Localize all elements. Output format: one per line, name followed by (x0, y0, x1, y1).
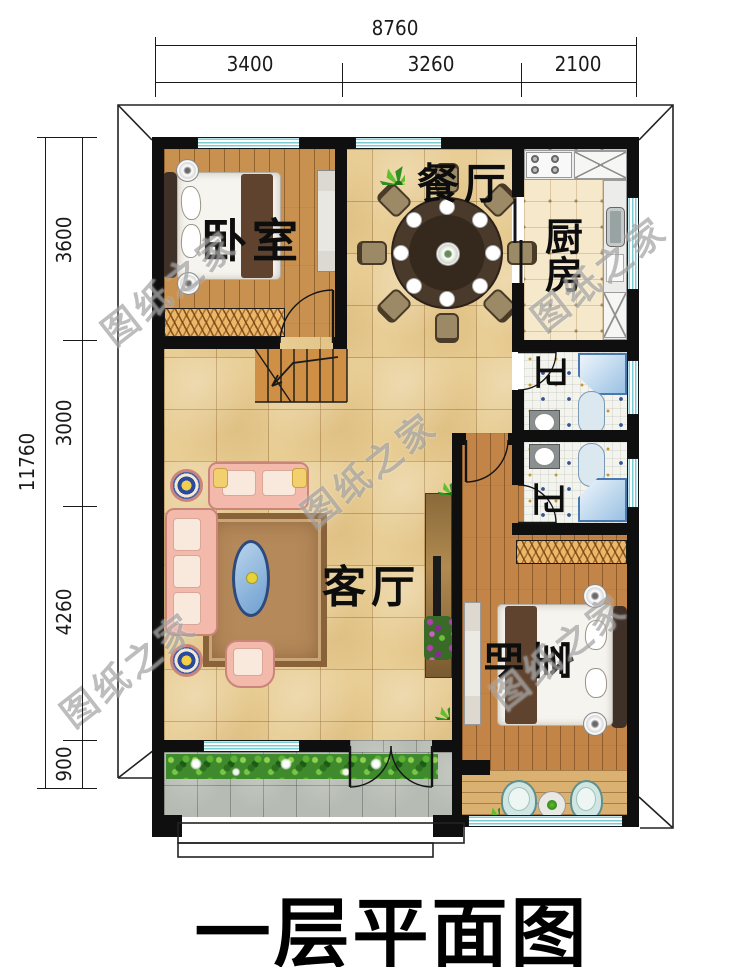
dim-tick (342, 63, 343, 97)
dim-left-seg0: 3600 (52, 217, 76, 264)
window (355, 137, 442, 149)
dim-top-seg-line (155, 82, 636, 83)
dim-tick (63, 740, 97, 741)
balcony-chair-cushion (576, 787, 596, 811)
dining-chair (507, 241, 537, 265)
stove-burner (551, 166, 559, 174)
sink-upper (578, 391, 605, 435)
plan-title: 一层平面图 (195, 872, 590, 967)
room-label-dining: 餐厅 (417, 151, 511, 212)
porch-hedge (166, 754, 438, 779)
window (203, 740, 300, 752)
balcony-chair-cushion (508, 787, 530, 811)
plate (393, 245, 409, 261)
dim-tick (155, 37, 156, 97)
plant-icon (416, 686, 450, 720)
dim-top-seg0: 3400 (227, 52, 274, 76)
toilet-upper-bowl (534, 413, 555, 432)
kitchen-cabinet-x (603, 292, 627, 338)
nightstand-lamp (176, 159, 199, 182)
dim-left-seg-line (82, 137, 83, 788)
dim-tick (63, 506, 97, 507)
sofa-cushion (262, 470, 296, 496)
stove-burner (551, 155, 559, 163)
dresser (317, 170, 338, 272)
dim-top-total-line (155, 45, 636, 46)
plate (406, 212, 422, 228)
dim-top-seg2: 2100 (555, 52, 602, 76)
side-table (170, 469, 203, 502)
dining-chair (357, 241, 387, 265)
dim-left-seg2: 4260 (52, 589, 76, 636)
throw-pillow (213, 468, 228, 488)
dim-tick (521, 63, 522, 97)
porch-steps (178, 823, 464, 857)
plant-icon (420, 463, 452, 495)
dim-top-seg1: 3260 (408, 52, 455, 76)
sofa-cushion (173, 518, 201, 551)
plate (472, 278, 488, 294)
dim-tick (37, 137, 97, 138)
wardrobe (164, 308, 285, 337)
room-label-bath-upper: 卫 (529, 355, 578, 389)
wardrobe (516, 540, 627, 564)
dim-top-total: 8760 (372, 16, 419, 40)
bed-pillow (584, 667, 608, 698)
toilet-lower-bowl (534, 447, 555, 466)
dim-tick (636, 37, 637, 97)
dim-left-total: 11760 (15, 433, 39, 492)
dim-left-seg3: 900 (52, 746, 76, 781)
kitchen-cabinet-x (574, 151, 627, 179)
nightstand-lamp (583, 712, 607, 736)
dim-left-total-line (45, 137, 46, 788)
plate (406, 278, 422, 294)
stove-burner (531, 166, 539, 174)
window (197, 137, 300, 149)
dim-tick (37, 788, 97, 789)
armchair-cushion (233, 648, 263, 676)
dim-left-seg1: 3000 (52, 400, 76, 447)
dim-tick (63, 340, 97, 341)
plate (439, 291, 455, 307)
flower-planter (424, 616, 452, 660)
stove-burner (531, 155, 539, 163)
floor-plan-page: 8760 3400 3260 2100 11760 3600 3000 4260… (0, 0, 750, 967)
room-label-bath-lower: 卫 (527, 482, 576, 516)
balcony-table-plant (547, 800, 557, 810)
plant-icon (350, 143, 405, 185)
window (468, 815, 623, 827)
window (627, 360, 639, 415)
dining-centerpiece (436, 242, 460, 266)
window (627, 458, 639, 508)
dining-chair (435, 313, 459, 343)
plate (485, 245, 501, 261)
door-threshold (350, 740, 432, 752)
plate (472, 212, 488, 228)
sofa-cushion (173, 555, 201, 588)
coffee-table-item (246, 572, 258, 584)
stair-floor (255, 349, 347, 402)
room-label-living: 客厅 (322, 551, 420, 615)
